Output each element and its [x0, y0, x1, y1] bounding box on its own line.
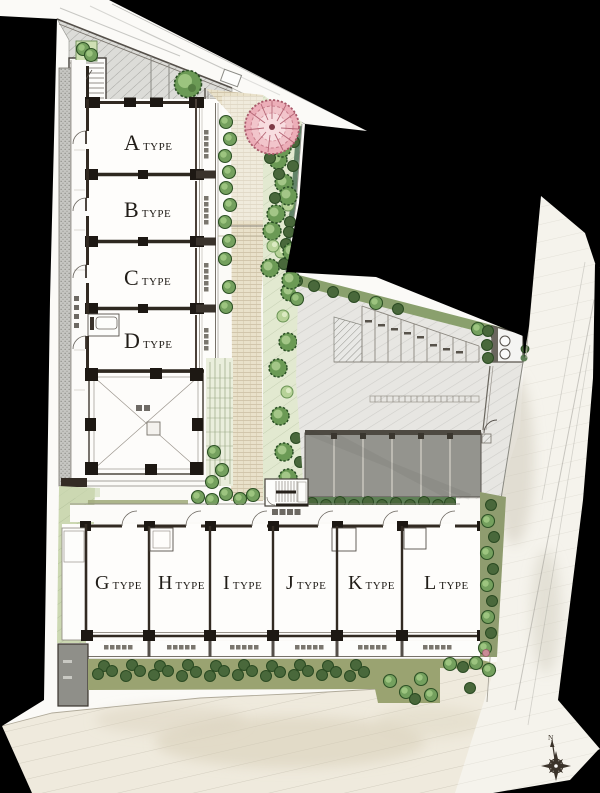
svg-text:N: N	[548, 733, 554, 742]
